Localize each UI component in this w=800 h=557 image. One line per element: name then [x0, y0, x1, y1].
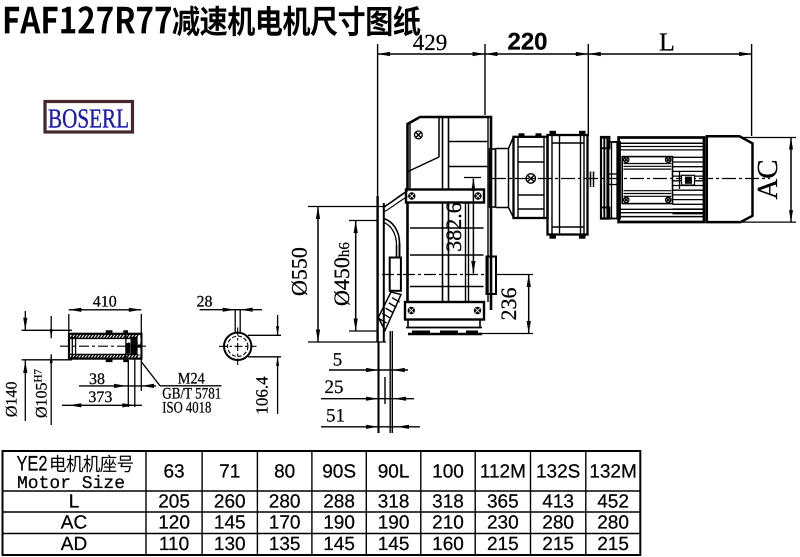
svg-text:215: 215: [597, 534, 629, 555]
svg-text:145: 145: [323, 534, 355, 555]
svg-text:382.6: 382.6: [441, 202, 466, 252]
svg-text:BOSERL: BOSERL: [48, 103, 129, 134]
svg-text:ISO 4018: ISO 4018: [162, 399, 211, 416]
svg-text:AC: AC: [61, 513, 87, 534]
svg-text:413: 413: [542, 492, 574, 513]
svg-text:280: 280: [597, 513, 629, 534]
svg-text:71: 71: [219, 462, 240, 483]
svg-text:318: 318: [378, 492, 410, 513]
svg-text:220: 220: [507, 29, 547, 56]
svg-text:Ø140: Ø140: [4, 382, 21, 418]
svg-text:260: 260: [214, 492, 246, 513]
svg-text:230: 230: [487, 513, 519, 534]
svg-text:365: 365: [487, 492, 519, 513]
svg-text:120: 120: [158, 513, 190, 534]
svg-text:190: 190: [378, 513, 410, 534]
svg-text:288: 288: [323, 492, 355, 513]
svg-text:AD: AD: [61, 534, 87, 555]
svg-text:429: 429: [413, 30, 448, 55]
svg-text:170: 170: [269, 513, 301, 534]
svg-text:132S: 132S: [536, 462, 580, 483]
svg-text:236: 236: [496, 288, 521, 321]
svg-text:25: 25: [325, 377, 344, 398]
svg-text:38: 38: [89, 371, 105, 388]
svg-text:90L: 90L: [378, 462, 410, 483]
svg-text:112M: 112M: [480, 462, 526, 483]
svg-text:160: 160: [432, 534, 464, 555]
svg-text:110: 110: [159, 534, 189, 555]
svg-text:373: 373: [88, 389, 112, 406]
svg-text:130: 130: [214, 534, 246, 555]
svg-text:100: 100: [432, 462, 464, 483]
svg-text:280: 280: [269, 492, 301, 513]
svg-text:51: 51: [326, 406, 345, 427]
svg-text:215: 215: [487, 534, 519, 555]
svg-text:L: L: [69, 492, 80, 513]
svg-text:90S: 90S: [322, 462, 356, 483]
svg-text:Ø550: Ø550: [287, 247, 312, 296]
svg-text:190: 190: [323, 513, 355, 534]
svg-text:318: 318: [432, 492, 464, 513]
svg-text:132M: 132M: [589, 462, 637, 483]
svg-text:135: 135: [269, 534, 301, 555]
svg-text:AC: AC: [752, 159, 784, 199]
svg-text:410: 410: [93, 294, 117, 311]
svg-text:210: 210: [432, 513, 464, 534]
svg-text:452: 452: [597, 492, 629, 513]
svg-text:145: 145: [214, 513, 246, 534]
svg-text:205: 205: [158, 492, 190, 513]
svg-text:80: 80: [274, 462, 295, 483]
svg-text:YE2: YE2: [17, 453, 48, 476]
svg-text:L: L: [659, 28, 675, 57]
svg-text:5: 5: [333, 350, 343, 371]
svg-text:280: 280: [542, 513, 574, 534]
svg-text:106.4: 106.4: [253, 376, 272, 415]
svg-text:28: 28: [197, 293, 213, 310]
svg-text:63: 63: [163, 462, 184, 483]
svg-text:215: 215: [542, 534, 574, 555]
svg-text:145: 145: [378, 534, 410, 555]
